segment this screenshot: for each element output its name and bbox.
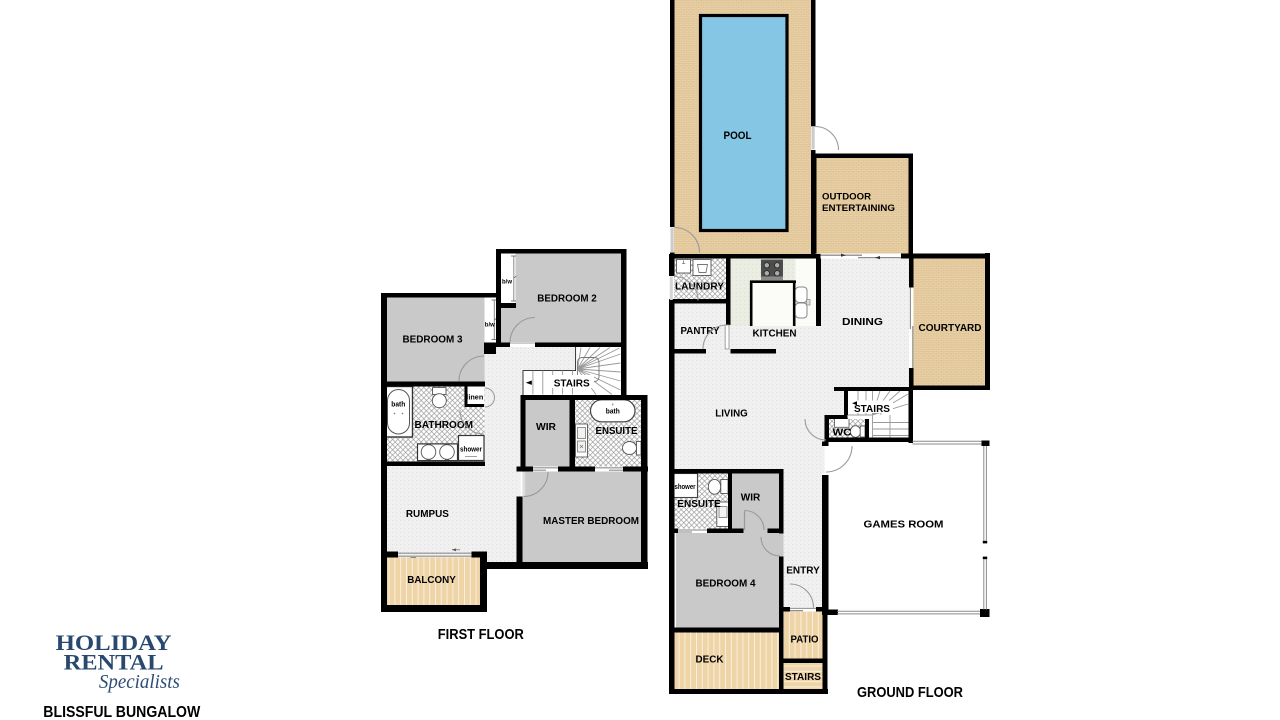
svg-text:bath: bath — [606, 409, 620, 416]
svg-text:b/w: b/w — [502, 279, 513, 286]
svg-text:COURTYARD: COURTYARD — [919, 323, 982, 334]
svg-text:shower: shower — [460, 447, 482, 454]
svg-text:BEDROOM 3: BEDROOM 3 — [403, 335, 463, 346]
svg-text:ENSUITE: ENSUITE — [596, 426, 638, 437]
svg-text:FIRST FLOOR: FIRST FLOOR — [438, 626, 524, 643]
svg-text:b/w: b/w — [485, 322, 496, 329]
svg-text:PATIO: PATIO — [791, 635, 819, 646]
svg-text:BALCONY: BALCONY — [407, 575, 456, 586]
svg-text:shower: shower — [675, 484, 696, 491]
svg-text:WC: WC — [833, 427, 852, 438]
svg-text:ENTRY: ENTRY — [786, 565, 820, 576]
svg-text:ENTERTAINING: ENTERTAINING — [822, 203, 895, 214]
svg-text:LIVING: LIVING — [715, 408, 748, 419]
svg-text:STAIRS: STAIRS — [785, 672, 821, 683]
svg-text:STAIRS: STAIRS — [554, 378, 590, 389]
svg-text:OUTDOOR: OUTDOOR — [822, 192, 871, 203]
svg-text:BLISSFUL BUNGALOW: BLISSFUL BUNGALOW — [43, 704, 201, 720]
svg-text:WIR: WIR — [741, 493, 761, 504]
svg-text:RUMPUS: RUMPUS — [406, 509, 449, 520]
svg-text:BEDROOM 4: BEDROOM 4 — [696, 579, 756, 590]
svg-text:POOL: POOL — [724, 130, 752, 142]
svg-text:BEDROOM 2: BEDROOM 2 — [537, 294, 597, 305]
svg-text:ENSUITE: ENSUITE — [677, 499, 721, 510]
svg-text:GROUND FLOOR: GROUND FLOOR — [857, 684, 963, 701]
svg-text:Specialists: Specialists — [99, 671, 180, 693]
svg-text:WIR: WIR — [536, 422, 557, 433]
svg-text:DECK: DECK — [696, 655, 725, 666]
svg-text:KITCHEN: KITCHEN — [753, 328, 797, 339]
svg-text:bath: bath — [391, 401, 405, 408]
svg-text:PANTRY: PANTRY — [681, 326, 720, 337]
svg-text:LAUNDRY: LAUNDRY — [675, 282, 724, 293]
svg-text:STAIRS: STAIRS — [854, 404, 890, 415]
svg-text:MASTER BEDROOM: MASTER BEDROOM — [543, 516, 639, 527]
svg-text:GAMES ROOM: GAMES ROOM — [864, 519, 944, 531]
svg-text:DINING: DINING — [842, 317, 883, 328]
svg-text:linen: linen — [466, 394, 483, 401]
svg-text:BATHROOM: BATHROOM — [415, 420, 474, 431]
